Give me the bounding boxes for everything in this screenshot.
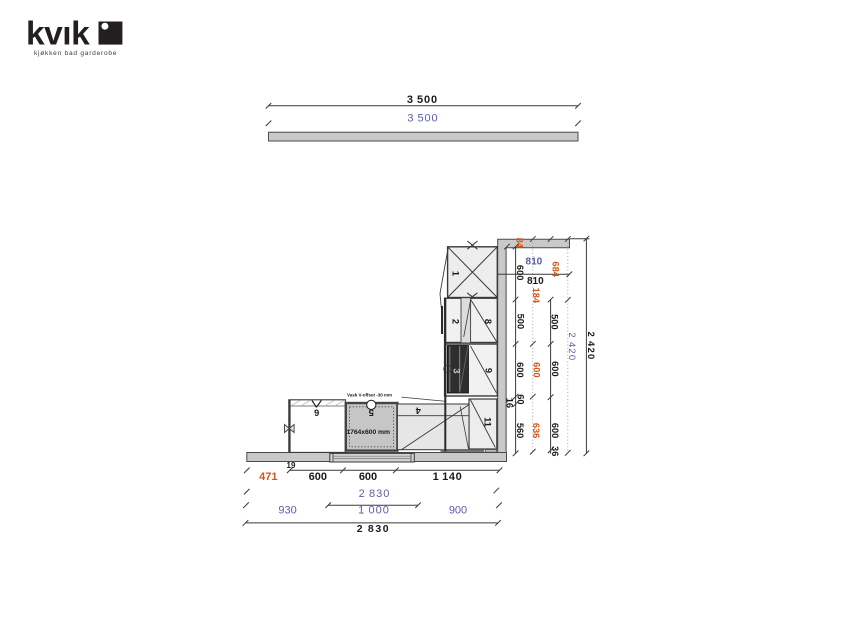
svg-text:3 500: 3 500 <box>407 112 438 124</box>
svg-text:6: 6 <box>314 407 319 417</box>
svg-text:36: 36 <box>550 446 560 456</box>
svg-text:3 500: 3 500 <box>407 94 438 106</box>
svg-text:600: 600 <box>515 362 525 378</box>
svg-text:1: 1 <box>451 271 461 276</box>
svg-text:1 000: 1 000 <box>358 505 390 517</box>
svg-text:600: 600 <box>550 423 560 439</box>
svg-text:560: 560 <box>515 423 525 439</box>
svg-text:Vask V-offset -30 mm: Vask V-offset -30 mm <box>347 393 392 398</box>
svg-text:2: 2 <box>451 319 461 324</box>
svg-text:9: 9 <box>484 368 494 373</box>
svg-text:184: 184 <box>531 288 541 304</box>
svg-text:900: 900 <box>449 505 467 517</box>
svg-text:2 420: 2 420 <box>566 332 577 361</box>
svg-text:600: 600 <box>359 471 377 483</box>
svg-text:8: 8 <box>483 319 493 324</box>
svg-text:19: 19 <box>287 461 296 470</box>
svg-text:810: 810 <box>526 257 543 268</box>
svg-text:5: 5 <box>369 407 374 417</box>
svg-text:84: 84 <box>515 238 525 249</box>
svg-text:500: 500 <box>515 314 525 330</box>
svg-text:810: 810 <box>527 276 544 287</box>
svg-text:3: 3 <box>452 368 462 373</box>
svg-text:600: 600 <box>309 471 327 483</box>
svg-text:500: 500 <box>550 314 560 330</box>
svg-text:600: 600 <box>515 265 525 281</box>
svg-text:2 420: 2 420 <box>585 331 596 360</box>
svg-text:11: 11 <box>482 417 492 427</box>
svg-text:2 830: 2 830 <box>357 523 390 535</box>
svg-text:636: 636 <box>531 423 541 439</box>
svg-text:600: 600 <box>550 361 560 377</box>
svg-text:930: 930 <box>278 505 296 517</box>
svg-text:684: 684 <box>550 261 560 277</box>
svg-text:16: 16 <box>504 398 514 408</box>
svg-text:kjøkken bad garderobe: kjøkken bad garderobe <box>34 50 117 57</box>
svg-text:1 140: 1 140 <box>433 471 463 483</box>
svg-text:60: 60 <box>515 394 525 404</box>
svg-text:2 830: 2 830 <box>359 488 391 500</box>
svg-text:4: 4 <box>415 406 421 416</box>
svg-text:kvık: kvık <box>26 16 90 53</box>
svg-text:471: 471 <box>259 471 277 483</box>
svg-text:600: 600 <box>531 362 541 378</box>
svg-text:1764x600 mm: 1764x600 mm <box>346 429 390 436</box>
